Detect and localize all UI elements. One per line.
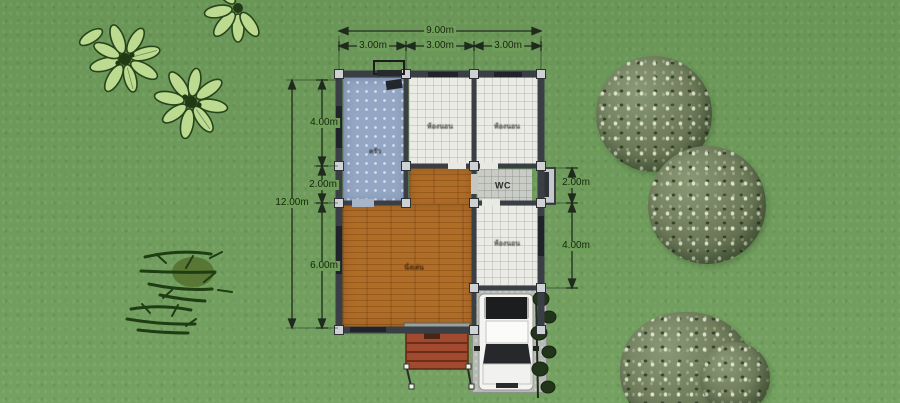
dim-top-seg-2: 3.00m — [424, 41, 456, 51]
bush-top-right-2 — [648, 146, 766, 264]
dim-right-seg-2: 4.00m — [560, 241, 592, 251]
tree-cluster-1 — [77, 0, 262, 140]
dim-right-seg-1: 2.00m — [560, 178, 592, 188]
dim-left-seg-2: 2.00m — [307, 180, 339, 190]
label-kitchen: ครัว — [369, 149, 381, 156]
branch-sketch — [127, 252, 232, 333]
label-wc: WC — [495, 182, 511, 191]
top-awning — [374, 61, 404, 90]
dim-left-seg-1: 4.00m — [308, 118, 340, 128]
dim-top-seg-1: 3.00m — [357, 41, 389, 51]
dim-left-seg-3: 6.00m — [308, 261, 340, 271]
label-bedroom-a: ห้องนอน — [427, 124, 453, 131]
label-bedroom-c: ห้องนอน — [494, 241, 520, 248]
site-plan: 9.00m 3.00m 3.00m 3.00m 12.00m 4.00m 2.0… — [0, 0, 900, 403]
label-bedroom-b: ห้องนอน — [494, 124, 520, 131]
car-pickup — [474, 294, 539, 390]
dim-top-seg-3: 3.00m — [492, 41, 524, 51]
label-living: นั่งเล่น — [404, 265, 424, 272]
dim-left-total: 12.00m — [273, 198, 310, 208]
dim-top-total: 9.00m — [424, 26, 456, 36]
